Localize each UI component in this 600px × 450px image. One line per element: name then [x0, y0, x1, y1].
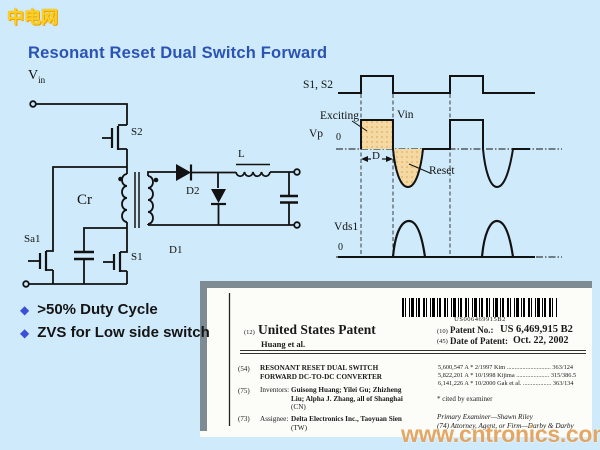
patent-no-value: US 6,469,915 B2 [500, 324, 573, 335]
s1-label: S1 [131, 251, 143, 263]
patent-assignee-line1: Delta Electronics Inc., Taoyuan Sien [291, 415, 402, 423]
patent-doc-title: United States Patent [258, 322, 376, 338]
vin-label-sub: in [38, 75, 45, 85]
patent-cited-note: * cited by examiner [437, 395, 492, 403]
vds1-zero-label: 0 [338, 242, 343, 253]
diamond-bullet-icon: ◆ [20, 327, 29, 339]
patent-citation: 5,600,547 A * 2/1997 Kim ...............… [438, 364, 573, 371]
patent-citation: 5,822,201 A * 10/1998 Kijima ...........… [438, 372, 576, 379]
patent-assignee-line2: (TW) [291, 424, 307, 432]
patent-date-code: (45) [437, 338, 448, 345]
bullet-duty-cycle: ◆ >50% Duty Cycle [20, 301, 158, 318]
vin-waveform-label: Vin [397, 109, 414, 121]
patent-kind-code: (12) [244, 329, 255, 336]
s1s2-waveform-label: S1, S2 [303, 79, 333, 91]
slide: 中电网 Resonant Reset Dual Switch Forward V… [0, 0, 600, 450]
vin-label-main: V [28, 68, 38, 83]
patent-assignee-label: Assignee: [260, 415, 288, 423]
diamond-bullet-icon: ◆ [20, 304, 29, 316]
bullet-zvs: ◆ ZVS for Low side switch [20, 324, 210, 341]
patent-date-value: Oct. 22, 2002 [513, 335, 569, 346]
page-title: Resonant Reset Dual Switch Forward [28, 44, 327, 63]
d2-label: D2 [186, 185, 199, 197]
patent-inventors-line3: (CN) [291, 403, 306, 411]
patent-barcode-number: US006469915B2 [402, 316, 558, 323]
watermark: www.cntronics.com [401, 421, 600, 448]
reset-label: Reset [429, 165, 455, 177]
bullet-text: >50% Duty Cycle [37, 301, 157, 318]
bullet-text: ZVS for Low side switch [37, 324, 210, 341]
site-logo: 中电网 [7, 3, 58, 28]
patent-barcode [402, 298, 558, 317]
patent-authors: Huang et al. [261, 339, 305, 349]
patent-inventors-line2: Liu; Alpha J. Zhang, all of Shanghai [291, 395, 403, 403]
patent-inventors-line1: Guisong Huang; Yilei Gu; Zhizheng [291, 386, 402, 394]
duty-label: D [372, 150, 380, 162]
cr-label: Cr [77, 192, 92, 209]
patent-assignee-code: (73) [238, 415, 250, 423]
patent-no-code: (10) [437, 328, 448, 335]
patent-examiner-line: Primary Examiner—Shawn Riley [437, 413, 533, 421]
patent-title-line1: RESONANT RESET DUAL SWITCH [260, 364, 378, 372]
patent-title-line2: FORWARD DC-TO-DC CONVERTER [260, 373, 382, 381]
vp-zero-label: 0 [336, 132, 341, 143]
patent-inventors-code: (75) [238, 387, 250, 395]
exciting-label: Exciting [320, 110, 359, 122]
sa1-label: Sa1 [24, 233, 41, 245]
vds1-label: Vds1 [334, 221, 358, 233]
circuit-diagram [23, 101, 300, 287]
s2-label: S2 [131, 126, 143, 138]
patent-title-code: (54) [238, 365, 250, 373]
patent-date-label: Date of Patent: [450, 336, 508, 346]
vin-label: Vin [28, 68, 45, 85]
d1-label: D1 [169, 244, 182, 256]
patent-citation: 6,141,226 A * 10/2000 Gak et al. .......… [438, 380, 574, 387]
inductor-label: L [238, 148, 245, 160]
vp-label: Vp [309, 128, 323, 140]
patent-no-label: Patent No.: [450, 325, 494, 335]
patent-inventors-label: Inventors: [260, 386, 289, 394]
